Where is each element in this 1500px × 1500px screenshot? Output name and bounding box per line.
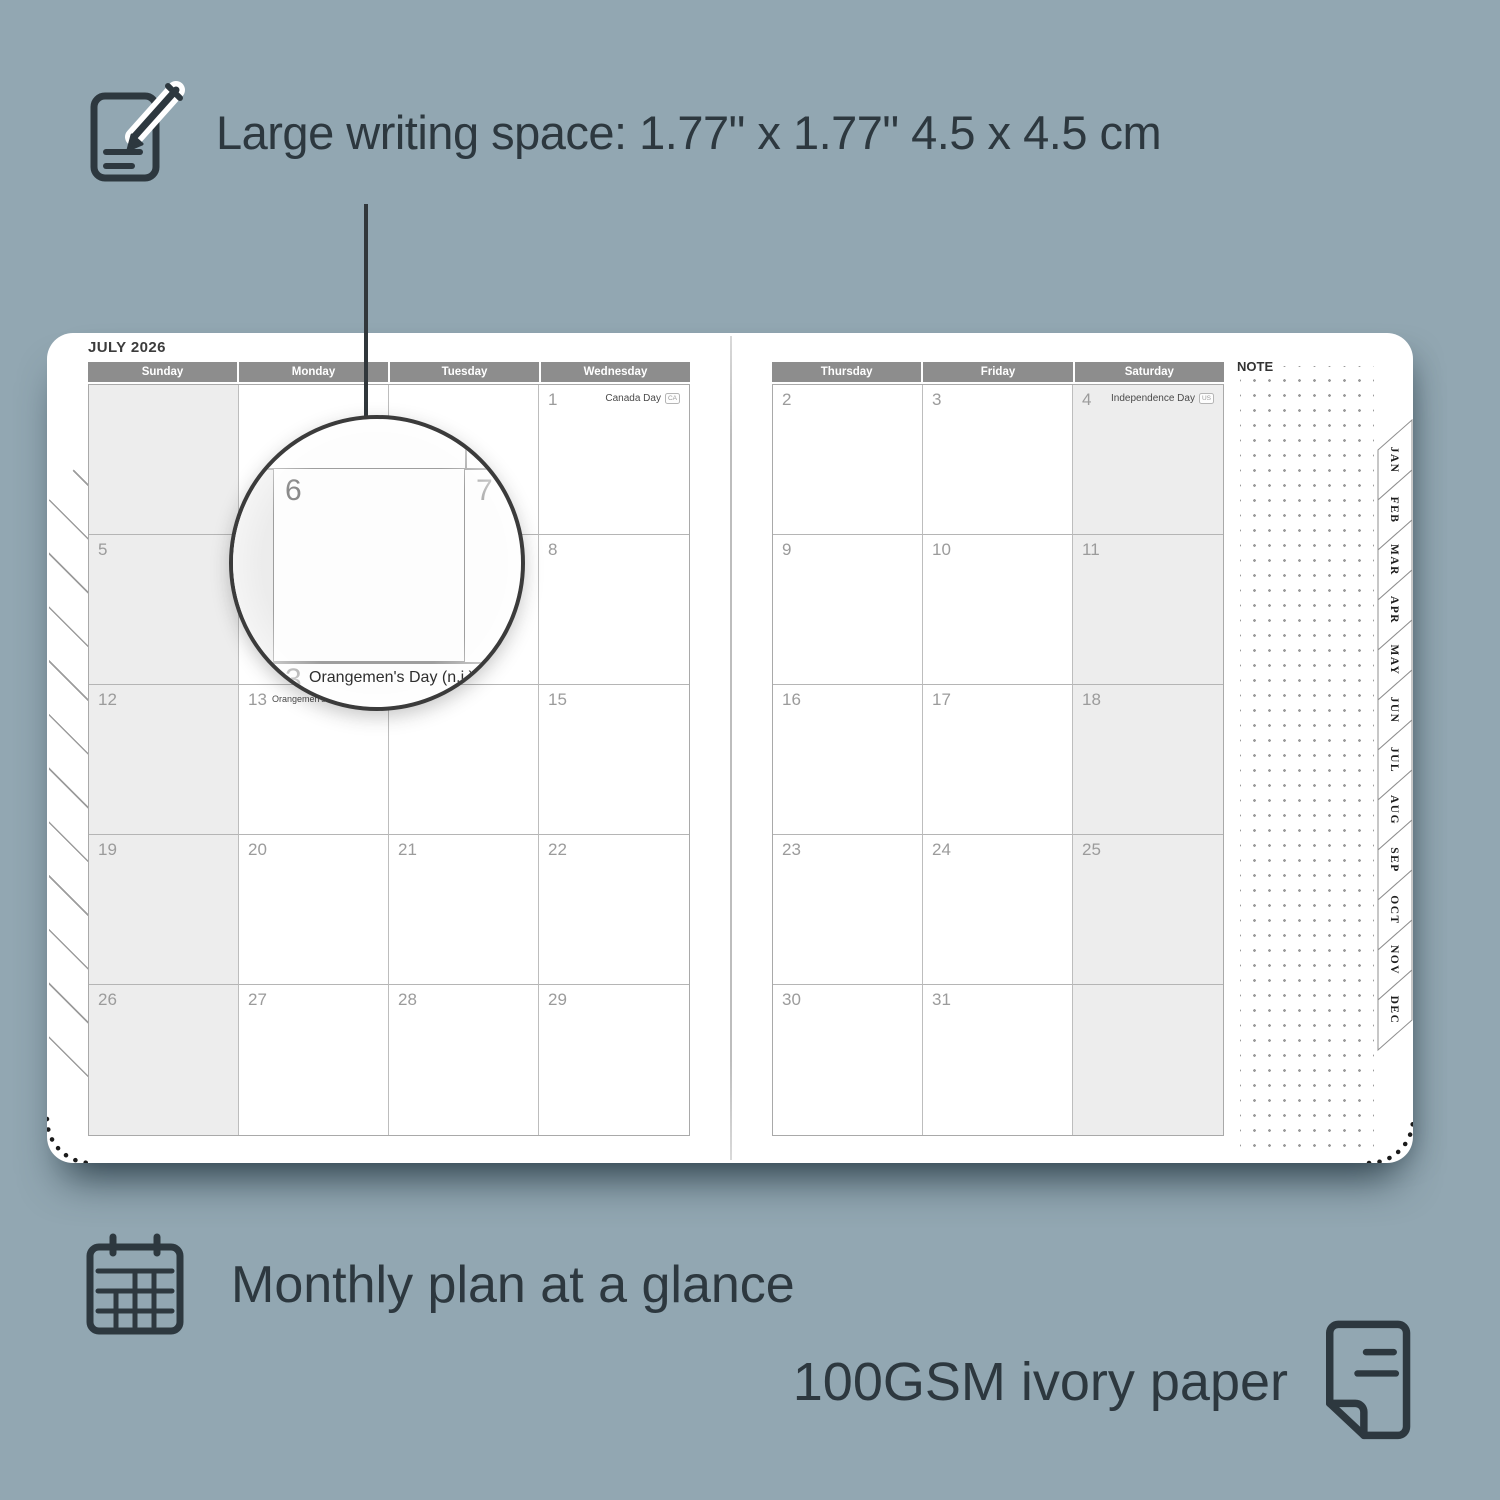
stitch-arc-left <box>47 1119 91 1163</box>
feature-paper-label: 100GSM ivory paper <box>793 1351 1288 1413</box>
feature-monthly-plan: Monthly plan at a glance <box>85 1233 795 1337</box>
magnified-writing-cell <box>273 468 465 662</box>
magnifier-circle: 6 7 3 Orangemen's Day (n.i.) UK <box>229 415 525 711</box>
magnified-holiday-label: Orangemen's Day (n.i.) UK <box>309 669 500 687</box>
uk-flag-badge: UK <box>481 671 500 685</box>
magnified-area: 6 7 3 Orangemen's Day (n.i.) UK <box>233 419 521 707</box>
corner-stitching <box>47 333 1413 1163</box>
feature-paper: 100GSM ivory paper <box>793 1318 1412 1446</box>
magnified-sunday-shade <box>233 468 273 699</box>
magnified-day-7: 7 <box>476 474 493 508</box>
paper-sheet-icon <box>1320 1318 1412 1446</box>
calendar-grid-icon <box>85 1233 185 1337</box>
stitch-arc-right <box>1369 1119 1413 1163</box>
note-label: NOTE <box>1237 359 1279 376</box>
callout-pointer-line <box>364 204 368 418</box>
feature-writing-space: Large writing space: 1.77" x 1.77" 4.5 x… <box>88 80 1161 184</box>
magnified-holiday-text: Orangemen's Day (n.i.) <box>309 669 474 687</box>
planner-notebook: JULY 2026 SundayMondayTuesdayWednesday 1… <box>47 333 1413 1163</box>
magnified-day-6: 6 <box>285 474 302 508</box>
magnified-grid-line <box>465 419 467 468</box>
magnified-day-13-partial: 3 <box>285 663 302 697</box>
notepad-pencil-icon <box>88 80 188 184</box>
planner-product-image: Large writing space: 1.77" x 1.77" 4.5 x… <box>0 0 1500 1500</box>
feature-writing-space-label: Large writing space: 1.77" x 1.77" 4.5 x… <box>216 105 1161 160</box>
magnified-grid-line <box>233 662 521 664</box>
feature-monthly-plan-label: Monthly plan at a glance <box>231 1255 795 1315</box>
